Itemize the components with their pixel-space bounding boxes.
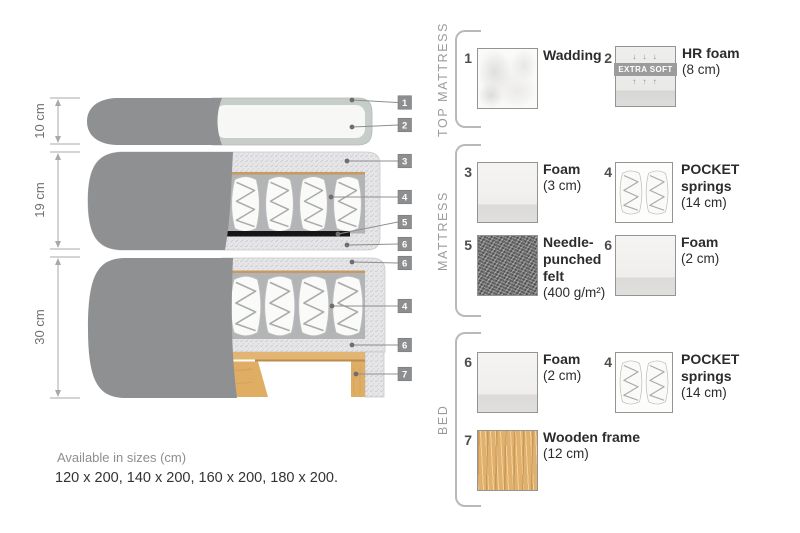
- measure-19cm: 19 cm: [32, 182, 47, 217]
- callout-tag-5: 5: [402, 218, 408, 229]
- legend-num-hr-foam: 2: [596, 50, 612, 66]
- callout-tag-3: 3: [402, 157, 407, 168]
- arrows-down-icon: ↓ ↓ ↓: [632, 52, 658, 62]
- foam-3cm-swatch: [477, 162, 538, 223]
- legend-label-wooden-frame: Wooden frame (12 cm): [543, 429, 718, 463]
- legend-num-wooden-frame: 7: [456, 432, 472, 448]
- available-sizes-list: 120 x 200, 140 x 200, 160 x 200, 180 x 2…: [55, 470, 338, 486]
- wadding-swatch: [477, 48, 538, 109]
- foam3-detail: (3 cm): [543, 178, 615, 194]
- callout-tags: 1 2 3 4 5 6 6 4 6 7: [398, 96, 412, 381]
- callout-tag-1: 1: [402, 98, 408, 109]
- legend-num-foam3: 3: [456, 164, 472, 180]
- section-title-mattress: MATTRESS: [434, 145, 452, 317]
- section-title-top-mattress: TOP MATTRESS: [434, 30, 452, 128]
- legend-num-pocket-springs: 4: [596, 164, 612, 180]
- pocket-springs-bed-name: POCKET springs: [681, 351, 753, 385]
- legend-num-wadding: 1: [456, 50, 472, 66]
- callout-tag-4b: 4: [402, 302, 408, 313]
- hr-foam-detail: (8 cm): [682, 62, 754, 78]
- callout-tag-2: 2: [402, 121, 407, 132]
- measure-30cm: 30 cm: [32, 309, 47, 344]
- measure-10cm: 10 cm: [32, 103, 47, 138]
- wooden-frame-detail: (12 cm): [543, 446, 718, 462]
- callout-tag-4: 4: [402, 193, 408, 204]
- felt-detail: (400 g/m²): [543, 285, 615, 301]
- legend-num-foam2-bed: 6: [456, 354, 472, 370]
- pocket-springs-bed-detail: (14 cm): [681, 385, 753, 401]
- pocket-springs-bed-swatch: [615, 352, 673, 413]
- size-measurements: 10 cm 19 cm 30 cm: [32, 98, 80, 398]
- callout-tag-6: 6: [402, 240, 407, 251]
- legend-num-foam2-mattress: 6: [596, 237, 612, 253]
- legend-label-pocket-springs: POCKET springs (14 cm): [681, 161, 753, 212]
- top-mattress-illustration: [87, 98, 372, 145]
- foam2-name: Foam: [681, 234, 753, 251]
- extra-soft-badge: EXTRA SOFT: [614, 63, 676, 76]
- pocket-springs-detail: (14 cm): [681, 195, 753, 211]
- bed-base-illustration: [88, 258, 385, 398]
- arrows-up-icon: ↑ ↑ ↑: [632, 77, 658, 87]
- mattress-infographic: 10 cm 19 cm 30 cm: [0, 0, 800, 533]
- callout-tag-6c: 6: [402, 341, 407, 352]
- foam-2cm-swatch: [615, 235, 676, 296]
- hr-foam-name: HR foam: [682, 45, 754, 62]
- needle-punched-felt-swatch: [477, 235, 538, 296]
- wooden-frame-name: Wooden frame: [543, 429, 718, 446]
- available-sizes-title: Available in sizes (cm): [57, 450, 186, 465]
- pocket-springs-swatch: [615, 162, 673, 223]
- foam2-detail: (2 cm): [681, 251, 753, 267]
- legend-label-pocket-springs-bed: POCKET springs (14 cm): [681, 351, 753, 402]
- wooden-frame-swatch: [477, 430, 538, 491]
- foam2-bed-detail: (2 cm): [543, 368, 615, 384]
- section-title-bed: BED: [434, 333, 452, 507]
- hr-foam-swatch: ↓ ↓ ↓ EXTRA SOFT ↑ ↑ ↑: [615, 46, 676, 107]
- legend-label-foam2-mattress: Foam (2 cm): [681, 234, 753, 268]
- foam-2cm-bed-swatch: [477, 352, 538, 413]
- legend-num-pocket-springs-bed: 4: [596, 354, 612, 370]
- pocket-springs-name: POCKET springs: [681, 161, 753, 195]
- callout-tag-7: 7: [402, 370, 407, 381]
- callout-tag-6b: 6: [402, 259, 407, 270]
- legend-num-felt: 5: [456, 237, 472, 253]
- legend-label-hr-foam: HR foam (8 cm): [682, 45, 754, 79]
